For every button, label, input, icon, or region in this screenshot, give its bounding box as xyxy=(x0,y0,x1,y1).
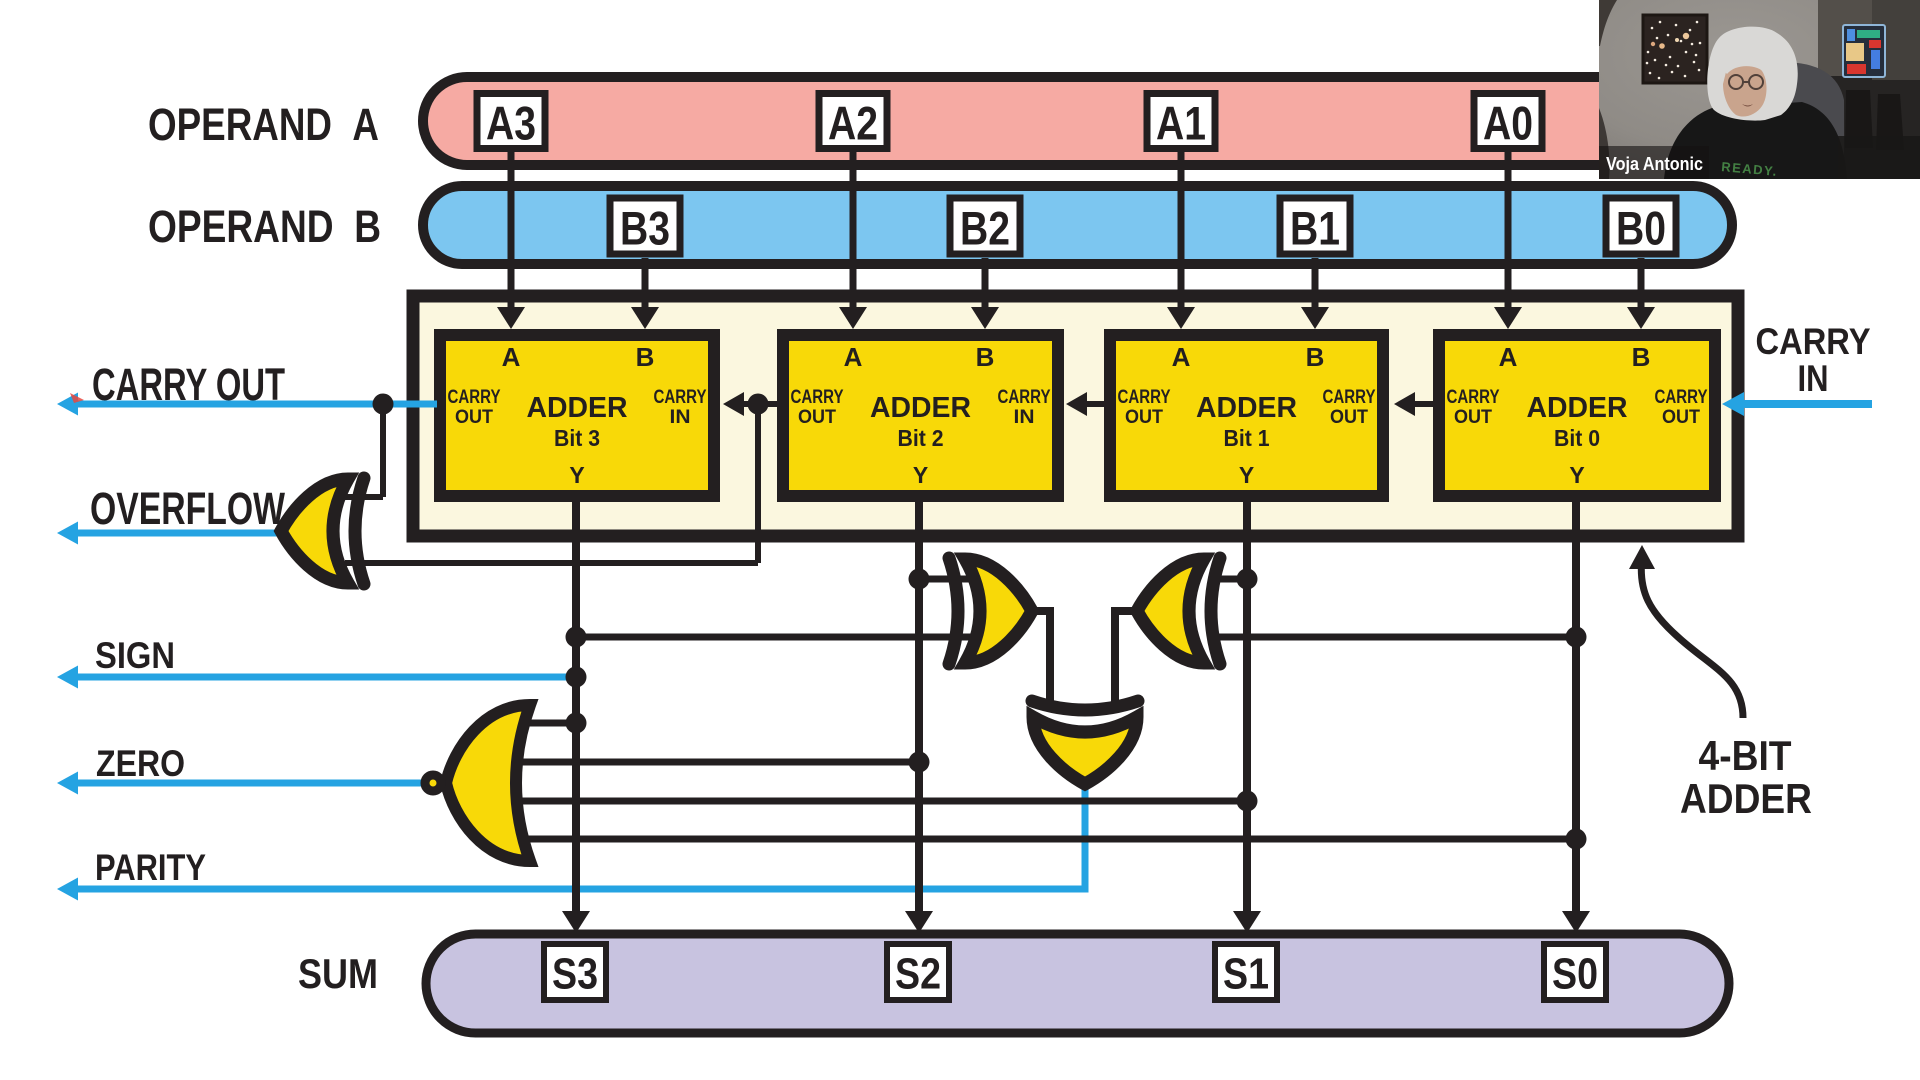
svg-text:B0: B0 xyxy=(1616,202,1666,255)
svg-text:A: A xyxy=(502,342,521,372)
svg-text:A: A xyxy=(1172,342,1191,372)
svg-text:IN: IN xyxy=(1014,407,1035,428)
svg-text:CARRY: CARRY xyxy=(1655,387,1708,408)
svg-text:Y: Y xyxy=(1569,462,1584,488)
svg-text:S3: S3 xyxy=(552,950,598,999)
svg-text:S2: S2 xyxy=(895,950,941,999)
svg-text:Voja Antonic: Voja Antonic xyxy=(1606,154,1703,174)
svg-text:SIGN: SIGN xyxy=(95,635,175,676)
svg-text:ADDER: ADDER xyxy=(527,392,628,424)
svg-text:Y: Y xyxy=(569,462,584,488)
svg-text:CARRY: CARRY xyxy=(791,387,844,408)
svg-text:Y: Y xyxy=(913,462,928,488)
svg-text:IN: IN xyxy=(670,407,691,428)
svg-text:CARRY: CARRY xyxy=(998,387,1051,408)
svg-text:OUT: OUT xyxy=(1662,407,1700,428)
svg-text:B: B xyxy=(1306,342,1325,372)
svg-text:A: A xyxy=(1499,342,1518,372)
svg-text:ADDER: ADDER xyxy=(1680,775,1812,822)
svg-text:OUT: OUT xyxy=(455,407,493,428)
svg-text:CARRY: CARRY xyxy=(1756,321,1871,362)
svg-text:Bit 2: Bit 2 xyxy=(898,425,944,451)
svg-text:OUT: OUT xyxy=(1454,407,1492,428)
svg-text:CARRY: CARRY xyxy=(448,387,501,408)
svg-text:S0: S0 xyxy=(1552,950,1598,999)
svg-text:ZERO: ZERO xyxy=(96,743,185,784)
svg-text:IN: IN xyxy=(1798,358,1829,399)
svg-text:PARITY: PARITY xyxy=(95,847,206,888)
svg-text:B2: B2 xyxy=(960,202,1010,255)
svg-text:CARRY: CARRY xyxy=(1118,387,1171,408)
svg-text:ADDER: ADDER xyxy=(1196,392,1297,424)
svg-text:CARRY: CARRY xyxy=(1447,387,1500,408)
svg-text:B3: B3 xyxy=(620,202,670,255)
svg-text:A2: A2 xyxy=(828,97,878,150)
svg-text:A3: A3 xyxy=(486,97,536,150)
svg-text:Y: Y xyxy=(1239,462,1254,488)
svg-text:A: A xyxy=(844,342,863,372)
svg-text:B: B xyxy=(636,342,655,372)
svg-text:CARRY: CARRY xyxy=(1323,387,1376,408)
svg-text:ADDER: ADDER xyxy=(1527,392,1628,424)
svg-text:OVERFLOW: OVERFLOW xyxy=(90,483,285,534)
svg-text:OUT: OUT xyxy=(798,407,836,428)
svg-text:CARRY: CARRY xyxy=(654,387,707,408)
svg-text:OUT: OUT xyxy=(1125,407,1163,428)
svg-text:OPERAND B: OPERAND B xyxy=(148,201,381,252)
svg-text:B1: B1 xyxy=(1290,202,1340,255)
svg-text:Bit 1: Bit 1 xyxy=(1224,425,1270,451)
svg-text:4-BIT: 4-BIT xyxy=(1699,732,1792,779)
svg-text:A1: A1 xyxy=(1156,97,1206,150)
svg-text:B: B xyxy=(976,342,995,372)
svg-text:ADDER: ADDER xyxy=(870,392,971,424)
svg-text:S1: S1 xyxy=(1223,950,1269,999)
svg-text:CARRY OUT: CARRY OUT xyxy=(92,359,285,410)
svg-text:B: B xyxy=(1632,342,1651,372)
svg-text:OUT: OUT xyxy=(1330,407,1368,428)
svg-text:Bit 0: Bit 0 xyxy=(1554,425,1600,451)
svg-text:OPERAND A: OPERAND A xyxy=(148,99,379,150)
svg-text:A0: A0 xyxy=(1483,97,1533,150)
svg-text:SUM: SUM xyxy=(298,950,378,997)
svg-text:Bit 3: Bit 3 xyxy=(554,425,600,451)
